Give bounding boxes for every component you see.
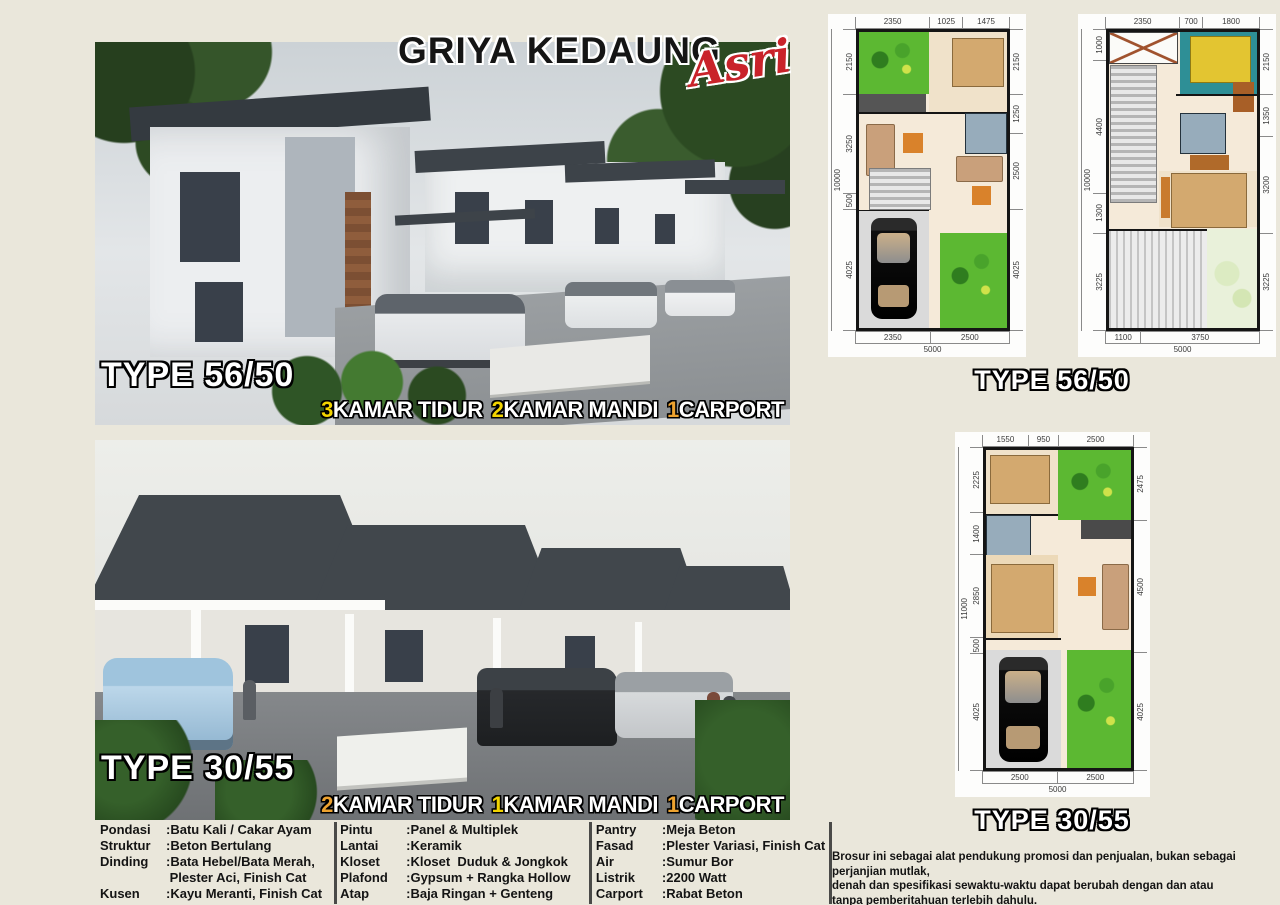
void-area	[1109, 32, 1178, 64]
roof-deck-area	[1109, 229, 1207, 330]
dim-label: 1025	[929, 17, 962, 29]
dim-overall-height: 10000	[1081, 29, 1093, 331]
type-label-56-50: TYPE 56/50	[101, 356, 294, 395]
person-graphic	[490, 688, 503, 728]
spec-row: Plafond:Gypsum + Rangka Hollow	[340, 870, 586, 886]
plan-type-label-30-55: TYPE 30/55	[826, 805, 1278, 836]
specification-table: Pondasi:Batu Kali / Cakar AyamStruktur:B…	[100, 822, 830, 905]
dim-label: 2150	[1260, 29, 1273, 94]
table-graphic	[1078, 577, 1095, 596]
dims-left: 2225140028505004025	[970, 447, 983, 771]
dim-overall-width: 5000	[982, 783, 1134, 795]
spec-key: Fasad	[596, 838, 662, 854]
car-graphic	[999, 657, 1048, 762]
person-graphic	[243, 680, 256, 720]
kitchen-area	[1081, 520, 1130, 539]
spec-value: :Keramik	[406, 838, 462, 854]
dim-label: 2150	[1010, 29, 1023, 94]
banner-label: KAMAR MANDI	[503, 792, 658, 817]
dim-label: 500	[843, 193, 856, 209]
spec-column-2: Pintu:Panel & MultiplekLantai:KeramikKlo…	[332, 822, 586, 905]
bed-graphic	[1190, 36, 1251, 82]
banner-label: CARPORT	[679, 792, 784, 817]
car-graphic	[871, 218, 917, 319]
column-divider	[334, 822, 337, 904]
brochure-page: GRIYA KEDAUNG Asri TYPE 56/50 3KAMAR TID…	[0, 0, 1280, 905]
feature-banner-56-50: 3KAMAR TIDUR2KAMAR MANDI1CARPORT	[312, 397, 784, 423]
banner-label: CARPORT	[679, 397, 784, 422]
spec-value: :Panel & Multiplek	[406, 822, 518, 838]
bed-graphic	[1171, 173, 1247, 228]
dim-label: 1350	[1260, 94, 1273, 135]
dim-label: 4025	[970, 653, 983, 771]
window-graphic	[525, 200, 553, 244]
window-graphic	[655, 214, 675, 244]
spec-value: :Plester Variasi, Finish Cat	[662, 838, 825, 854]
banner-item: 1CARPORT	[667, 397, 784, 422]
dims-bottom: 23502500	[855, 331, 1010, 343]
dim-label: 3250	[843, 94, 856, 192]
table-graphic	[903, 133, 922, 154]
dim-label: 950	[1028, 435, 1057, 447]
roof-graphic	[685, 180, 785, 194]
spec-key: Dinding	[100, 854, 166, 886]
spec-value: :Beton Bertulang	[166, 838, 271, 854]
column-divider	[829, 822, 832, 904]
spec-key: Kusen	[100, 886, 166, 902]
dim-label: 2850	[970, 554, 983, 637]
plan-drawing-56-50-upper	[1106, 29, 1260, 331]
dim-label: 1000	[1093, 29, 1106, 60]
garden-below-area	[1207, 229, 1257, 328]
dims-right: 2150135032003225	[1260, 29, 1273, 331]
spec-key: Pintu	[340, 822, 406, 838]
banner-count: 2	[492, 397, 504, 422]
garden-area	[1058, 450, 1131, 520]
banner-item: 3KAMAR TIDUR	[321, 397, 482, 422]
bed-graphic	[991, 564, 1054, 633]
spec-value: :Sumur Bor	[662, 854, 734, 870]
spec-row: Kusen:Kayu Meranti, Finish Cat	[100, 886, 332, 902]
spec-column-3: Pantry:Meja BetonFasad:Plester Variasi, …	[586, 822, 830, 905]
spec-value: :Baja Ringan + Genteng Beton	[406, 886, 586, 905]
floor-plan-56-50-ground: 235010251475 10000 215032505004025	[828, 14, 1026, 357]
dims-right: 2150125025004025	[1010, 29, 1023, 331]
dims-top: 23507001800	[1105, 17, 1260, 29]
spec-key: Struktur	[100, 838, 166, 854]
dim-label: 4500	[1134, 520, 1147, 652]
type-label-30-55: TYPE 30/55	[101, 749, 294, 788]
floor-plans-column: 235010251475 10000 215032505004025	[826, 14, 1278, 905]
window-graphic	[385, 630, 423, 682]
spec-key: Listrik	[596, 870, 662, 886]
dim-label: 1100	[1105, 331, 1140, 343]
banner-item: 2KAMAR MANDI	[492, 397, 658, 422]
dim-label: 2475	[1134, 447, 1147, 520]
window-graphic	[595, 208, 619, 244]
dim-overall-width: 5000	[1105, 343, 1260, 355]
notes-block: Brosur ini sebagai alat pendukung promos…	[826, 850, 1278, 905]
bathroom-area	[965, 113, 1007, 153]
dim-label: 3225	[1093, 233, 1106, 332]
column-divider	[589, 822, 592, 904]
dim-label: 1800	[1202, 17, 1260, 29]
spec-key: Pondasi	[100, 822, 166, 838]
spec-key: Carport	[596, 886, 662, 902]
spec-row: Lantai:Keramik	[340, 838, 586, 854]
dims-right: 247545004025	[1134, 447, 1147, 771]
banner-label: KAMAR TIDUR	[333, 397, 483, 422]
spec-row: Atap:Baja Ringan + Genteng Beton	[340, 886, 586, 905]
dim-label: 1300	[1093, 193, 1106, 233]
dim-label: 1400	[970, 512, 983, 553]
dims-bottom: 25002500	[982, 771, 1134, 783]
dim-label: 2500	[1058, 435, 1134, 447]
stairs-area	[869, 168, 930, 210]
garden-area	[940, 233, 1007, 328]
render-photo-type-56-50: TYPE 56/50 3KAMAR TIDUR2KAMAR MANDI1CARP…	[95, 42, 790, 425]
window-graphic	[180, 172, 240, 262]
closet-graphic	[1161, 177, 1170, 218]
banner-count: 1	[667, 397, 679, 422]
dresser-graphic	[1233, 82, 1254, 112]
banner-label: KAMAR MANDI	[503, 397, 658, 422]
dim-label: 2500	[982, 771, 1058, 783]
banner-count: 3	[321, 397, 333, 422]
dim-label: 1250	[1010, 94, 1023, 132]
banner-count: 2	[321, 792, 333, 817]
dim-label: 3200	[1260, 136, 1273, 233]
post-graphic	[345, 614, 354, 694]
feature-banner-30-55: 2KAMAR TIDUR1KAMAR MANDI1CARPORT	[312, 792, 784, 818]
window-graphic	[245, 625, 289, 683]
spec-row: Carport:Rabat Beton	[596, 886, 830, 902]
dim-label: 2350	[1105, 17, 1179, 29]
plan-type-label-56-50: TYPE 56/50	[826, 365, 1278, 396]
dim-label: 2150	[843, 29, 856, 94]
table-graphic	[972, 186, 991, 205]
spec-value: :Gypsum + Rangka Hollow	[406, 870, 570, 886]
spec-key: Air	[596, 854, 662, 870]
spec-row: Pintu:Panel & Multiplek	[340, 822, 586, 838]
wardrobe-graphic	[1190, 155, 1228, 170]
spec-value: :Bata Hebel/Bata Merah, Plester Aci, Fin…	[166, 854, 315, 886]
plans-row-56-50: 235010251475 10000 215032505004025	[826, 14, 1278, 357]
bathroom-area	[986, 515, 1032, 557]
dim-label: 4025	[1010, 209, 1023, 331]
wall-line	[1176, 94, 1257, 96]
spec-key: Atap	[340, 886, 406, 905]
kitchen-area	[859, 94, 926, 112]
dim-overall-height: 11000	[958, 447, 970, 771]
dims-left: 1000440013003225	[1093, 29, 1106, 331]
spec-value: :Meja Beton	[662, 822, 736, 838]
dim-label: 2500	[1057, 771, 1134, 783]
planter-graphic	[337, 727, 467, 786]
disclaimer-text: Brosur ini sebagai alat pendukung promos…	[832, 850, 1272, 905]
dim-label: 3750	[1140, 331, 1260, 343]
spec-column-1: Pondasi:Batu Kali / Cakar AyamStruktur:B…	[100, 822, 332, 905]
banner-count: 1	[492, 792, 504, 817]
dim-label: 2500	[930, 331, 1010, 343]
dim-label: 2225	[970, 447, 983, 512]
bathroom-area	[1180, 113, 1226, 153]
dim-label: 2500	[1010, 133, 1023, 209]
spec-row: Fasad:Plester Variasi, Finish Cat	[596, 838, 830, 854]
car-graphic	[665, 280, 735, 316]
spec-key: Pantry	[596, 822, 662, 838]
dims-bottom: 11003750	[1105, 331, 1260, 343]
garden-area	[1067, 650, 1131, 768]
stairs-area	[1110, 65, 1156, 203]
dim-label: 1475	[962, 17, 1010, 29]
dim-overall-width: 5000	[855, 343, 1010, 355]
brand-title: GRIYA KEDAUNG	[398, 30, 721, 72]
banner-count: 1	[667, 792, 679, 817]
spec-row: Struktur:Beton Bertulang	[100, 838, 332, 854]
spec-value: :Kloset Duduk & Jongkok	[406, 854, 568, 870]
spec-value: :Batu Kali / Cakar Ayam	[166, 822, 312, 838]
spec-row: Air:Sumur Bor	[596, 854, 830, 870]
render-photo-type-30-55: TYPE 30/55 2KAMAR TIDUR1KAMAR MANDI1CARP…	[95, 440, 790, 820]
window-graphic	[195, 282, 243, 342]
spec-row: Pondasi:Batu Kali / Cakar Ayam	[100, 822, 332, 838]
dims-left: 215032505004025	[843, 29, 856, 331]
sofa-graphic	[956, 156, 1002, 182]
wall-line	[986, 638, 1061, 640]
spec-value: :Rabat Beton	[662, 886, 743, 902]
dims-top: 235010251475	[855, 17, 1010, 29]
plans-row-30-55: 15509502500 11000 2225140028505004025	[826, 432, 1278, 797]
spec-value: :2200 Watt	[662, 870, 727, 886]
dim-overall-height: 10000	[831, 29, 843, 331]
spec-key: Plafond	[340, 870, 406, 886]
dim-label: 500	[970, 637, 983, 652]
spec-key: Lantai	[340, 838, 406, 854]
dim-label: 2350	[855, 17, 929, 29]
plan-drawing-30-55	[983, 447, 1134, 771]
spec-row: Dinding:Bata Hebel/Bata Merah, Plester A…	[100, 854, 332, 886]
banner-label: KAMAR TIDUR	[333, 792, 483, 817]
dim-label: 4400	[1093, 60, 1106, 193]
banner-item: 2KAMAR TIDUR	[321, 792, 482, 817]
dim-label: 1550	[982, 435, 1029, 447]
banner-item: 1KAMAR MANDI	[492, 792, 658, 817]
car-graphic	[565, 282, 657, 328]
dim-label: 3225	[1260, 233, 1273, 332]
spec-row: Listrik:2200 Watt	[596, 870, 830, 886]
floor-plan-30-55: 15509502500 11000 2225140028505004025	[955, 432, 1150, 797]
dim-label: 4025	[843, 209, 856, 331]
dim-label: 2350	[855, 331, 930, 343]
dim-label: 4025	[1134, 652, 1147, 771]
spec-key: Kloset	[340, 854, 406, 870]
floor-plan-56-50-upper: 23507001800 10000 1000440013003225	[1078, 14, 1276, 357]
dims-top: 15509502500	[982, 435, 1134, 447]
spec-value: :Kayu Meranti, Finish Cat	[166, 886, 322, 902]
banner-item: 1CARPORT	[667, 792, 784, 817]
spec-row: Kloset:Kloset Duduk & Jongkok	[340, 854, 586, 870]
garden-area	[859, 32, 929, 94]
bed-graphic	[990, 455, 1050, 505]
bed-graphic	[952, 38, 1004, 87]
spec-row: Pantry:Meja Beton	[596, 822, 830, 838]
dim-label: 700	[1179, 17, 1202, 29]
plan-drawing-56-50-ground	[856, 29, 1010, 331]
sofa-graphic	[1102, 564, 1129, 630]
